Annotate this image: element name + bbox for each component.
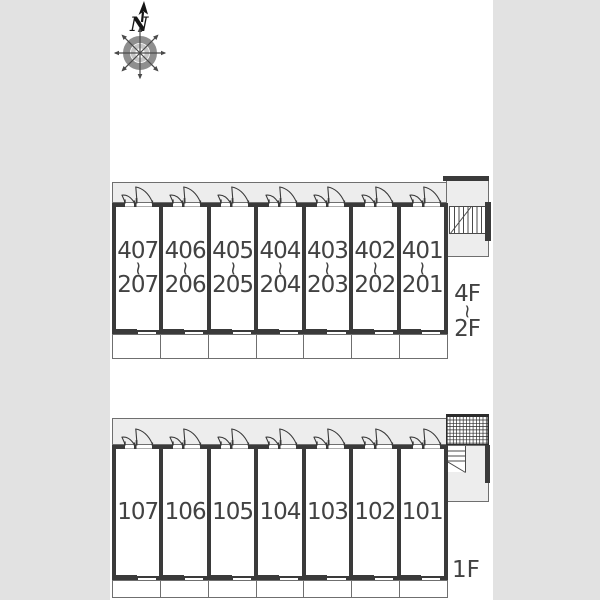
- unit-number-upper: 401: [402, 241, 443, 262]
- door-slot: [160, 181, 208, 209]
- door-slot: [256, 181, 304, 209]
- unit-407-207: 407~207: [116, 207, 159, 330]
- entrance-door-icon: [304, 181, 352, 209]
- unit-number-separator: ~: [131, 261, 144, 277]
- unit-number-upper: 405: [212, 241, 253, 262]
- floor-plan-canvas: N 407~207406~206405~205404~204403~203402…: [0, 0, 600, 600]
- compass-north-label: N: [129, 12, 149, 36]
- entrance-door-icon: [208, 423, 256, 451]
- unit-107: 107: [116, 449, 159, 576]
- unit-number-separator: ~: [179, 261, 192, 277]
- lower-stairs-icon: [448, 446, 469, 474]
- balcony-cell: [304, 581, 352, 597]
- entrance-door-icon: [304, 423, 352, 451]
- balcony-cell: [209, 335, 257, 358]
- balcony-cell: [304, 335, 352, 358]
- door-slot: [160, 423, 208, 451]
- unit-number-separator: ~: [368, 261, 381, 277]
- unit-number-separator: ~: [416, 261, 429, 277]
- lower-balcony-row: [112, 580, 448, 598]
- unit-number-lower: 205: [212, 275, 253, 296]
- balcony-cell: [113, 335, 161, 358]
- entrance-door-icon: [352, 181, 400, 209]
- door-slot: [256, 423, 304, 451]
- unit-number: 102: [354, 502, 395, 523]
- unit-number: 104: [260, 502, 301, 523]
- door-slot: [112, 181, 160, 209]
- entrance-door-icon: [112, 181, 160, 209]
- unit-401-201: 401~201: [401, 207, 444, 330]
- unit-number-lower: 204: [260, 275, 301, 296]
- unit-104: 104: [258, 449, 301, 576]
- unit-number-separator: ~: [226, 261, 239, 277]
- entrance-door-icon: [256, 181, 304, 209]
- entrance-door-icon: [400, 423, 448, 451]
- unit-number-upper: 402: [354, 241, 395, 262]
- door-slot: [208, 423, 256, 451]
- unit-403-203: 403~203: [306, 207, 349, 330]
- unit-402-202: 402~202: [353, 207, 396, 330]
- entrance-door-icon: [112, 423, 160, 451]
- unit-number-lower: 206: [165, 275, 206, 296]
- door-slot: [304, 423, 352, 451]
- balcony-cell: [161, 335, 209, 358]
- upper-stairs-icon: [449, 204, 487, 236]
- unit-number-lower: 207: [117, 275, 158, 296]
- door-slot: [400, 423, 448, 451]
- upper-unit-row: 407~207406~206405~205404~204403~203402~2…: [112, 203, 448, 334]
- door-slot: [112, 423, 160, 451]
- unit-105: 105: [211, 449, 254, 576]
- upper-north-wall: [443, 176, 489, 181]
- upper-stair-side-wall: [485, 202, 491, 241]
- entrance-door-icon: [160, 423, 208, 451]
- unit-number: 107: [117, 502, 158, 523]
- entrance-door-icon: [208, 181, 256, 209]
- unit-number-separator: ~: [273, 261, 286, 277]
- door-slot: [352, 423, 400, 451]
- unit-405-205: 405~205: [211, 207, 254, 330]
- unit-number-upper: 403: [307, 241, 348, 262]
- unit-number-upper: 406: [165, 241, 206, 262]
- balcony-cell: [352, 335, 400, 358]
- unit-number: 105: [212, 502, 253, 523]
- unit-number: 101: [402, 502, 443, 523]
- unit-number-upper: 407: [117, 241, 158, 262]
- balcony-cell: [257, 581, 305, 597]
- unit-406-206: 406~206: [163, 207, 206, 330]
- unit-number-upper: 404: [260, 241, 301, 262]
- balcony-cell: [352, 581, 400, 597]
- lower-unit-row: 107106105104103102101: [112, 445, 448, 580]
- balcony-cell: [257, 335, 305, 358]
- unit-103: 103: [306, 449, 349, 576]
- upper-floor-range-label: 4F ~ 2F: [448, 283, 486, 340]
- unit-102: 102: [353, 449, 396, 576]
- door-slot: [208, 181, 256, 209]
- door-slot: [352, 181, 400, 209]
- floor-range-separator: ~: [461, 293, 474, 331]
- balcony-cell: [400, 335, 447, 358]
- unit-number-lower: 202: [354, 275, 395, 296]
- unit-number: 103: [307, 502, 348, 523]
- lower-stair-side-wall: [485, 445, 490, 483]
- unit-number-separator: ~: [321, 261, 334, 277]
- balcony-cell: [400, 581, 447, 597]
- balcony-cell: [209, 581, 257, 597]
- balcony-cell: [113, 581, 161, 597]
- stair-hatch-icon: [446, 414, 489, 445]
- entrance-door-icon: [352, 423, 400, 451]
- lower-floor-label: 1F: [452, 559, 486, 581]
- unit-404-204: 404~204: [258, 207, 301, 330]
- door-slot: [400, 181, 448, 209]
- balcony-cell: [161, 581, 209, 597]
- unit-106: 106: [163, 449, 206, 576]
- door-slot: [304, 181, 352, 209]
- upper-balcony-row: [112, 334, 448, 359]
- entrance-door-icon: [400, 181, 448, 209]
- unit-number-lower: 201: [402, 275, 443, 296]
- unit-number: 106: [165, 502, 206, 523]
- unit-101: 101: [401, 449, 444, 576]
- entrance-door-icon: [256, 423, 304, 451]
- entrance-door-icon: [160, 181, 208, 209]
- compass-icon: N: [108, 0, 174, 95]
- unit-number-lower: 203: [307, 275, 348, 296]
